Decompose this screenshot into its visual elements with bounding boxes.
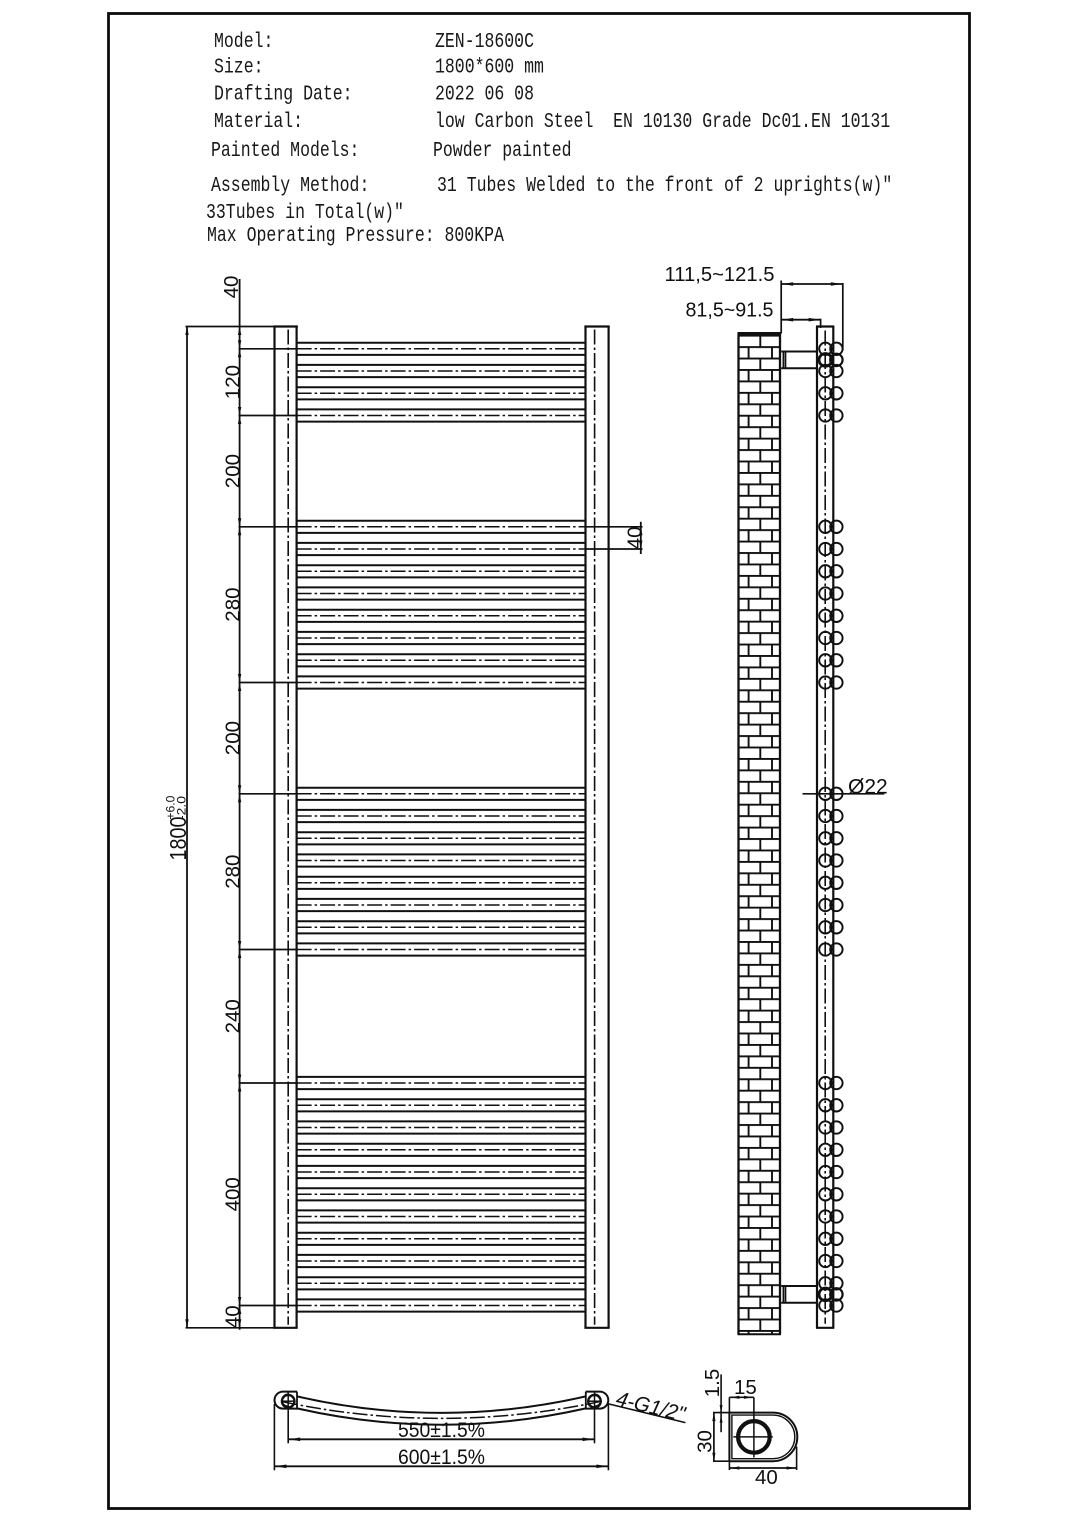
svg-text:111,5~121.5: 111,5~121.5 xyxy=(665,263,775,286)
svg-text:Material:: Material: xyxy=(214,109,303,134)
svg-text:200: 200 xyxy=(221,721,244,755)
svg-text:40: 40 xyxy=(623,526,646,549)
svg-text:600±1.5%: 600±1.5% xyxy=(398,1445,485,1469)
svg-text:1800: 1800 xyxy=(165,817,191,861)
svg-text:40: 40 xyxy=(220,276,243,299)
svg-text:280: 280 xyxy=(221,587,244,621)
svg-text:2022 06 08: 2022 06 08 xyxy=(435,81,534,106)
svg-text:31 Tubes Welded to the front o: 31 Tubes Welded to the front of 2 uprigh… xyxy=(437,173,892,198)
svg-text:low Carbon Steel EN 10130 Gra: low Carbon Steel EN 10130 Grade Dc01.EN … xyxy=(435,109,890,134)
svg-text:40: 40 xyxy=(755,1466,778,1489)
svg-text:1.5: 1.5 xyxy=(701,1369,724,1398)
svg-text:550±1.5%: 550±1.5% xyxy=(398,1418,485,1442)
svg-text:400: 400 xyxy=(221,1177,244,1211)
svg-text:Drafting Date:: Drafting Date: xyxy=(214,81,353,106)
svg-text:-2.0: -2.0 xyxy=(176,796,188,820)
svg-text:Max Operating Pressure: 800KPA: Max Operating Pressure: 800KPA xyxy=(207,223,504,248)
svg-text:30: 30 xyxy=(694,1430,717,1453)
svg-text:33Tubes in Total(w)″: 33Tubes in Total(w)″ xyxy=(206,200,404,225)
svg-text:280: 280 xyxy=(221,855,244,889)
svg-text:Ø22: Ø22 xyxy=(848,775,888,798)
svg-text:40: 40 xyxy=(221,1305,244,1328)
svg-text:1800*600 mm: 1800*600 mm xyxy=(435,54,544,79)
svg-text:120: 120 xyxy=(221,365,244,399)
svg-text:Size:: Size: xyxy=(214,54,263,79)
svg-text:Model:: Model: xyxy=(214,29,273,54)
svg-text:15: 15 xyxy=(734,1376,757,1399)
svg-text:240: 240 xyxy=(221,999,244,1033)
svg-text:200: 200 xyxy=(221,454,244,488)
svg-text:Powder painted: Powder painted xyxy=(433,138,572,163)
svg-text:Assembly Method:: Assembly Method: xyxy=(211,173,369,198)
svg-text:ZEN-18600C: ZEN-18600C xyxy=(435,29,534,54)
svg-text:Painted Models:: Painted Models: xyxy=(211,138,359,163)
svg-text:81,5~91.5: 81,5~91.5 xyxy=(686,299,774,322)
